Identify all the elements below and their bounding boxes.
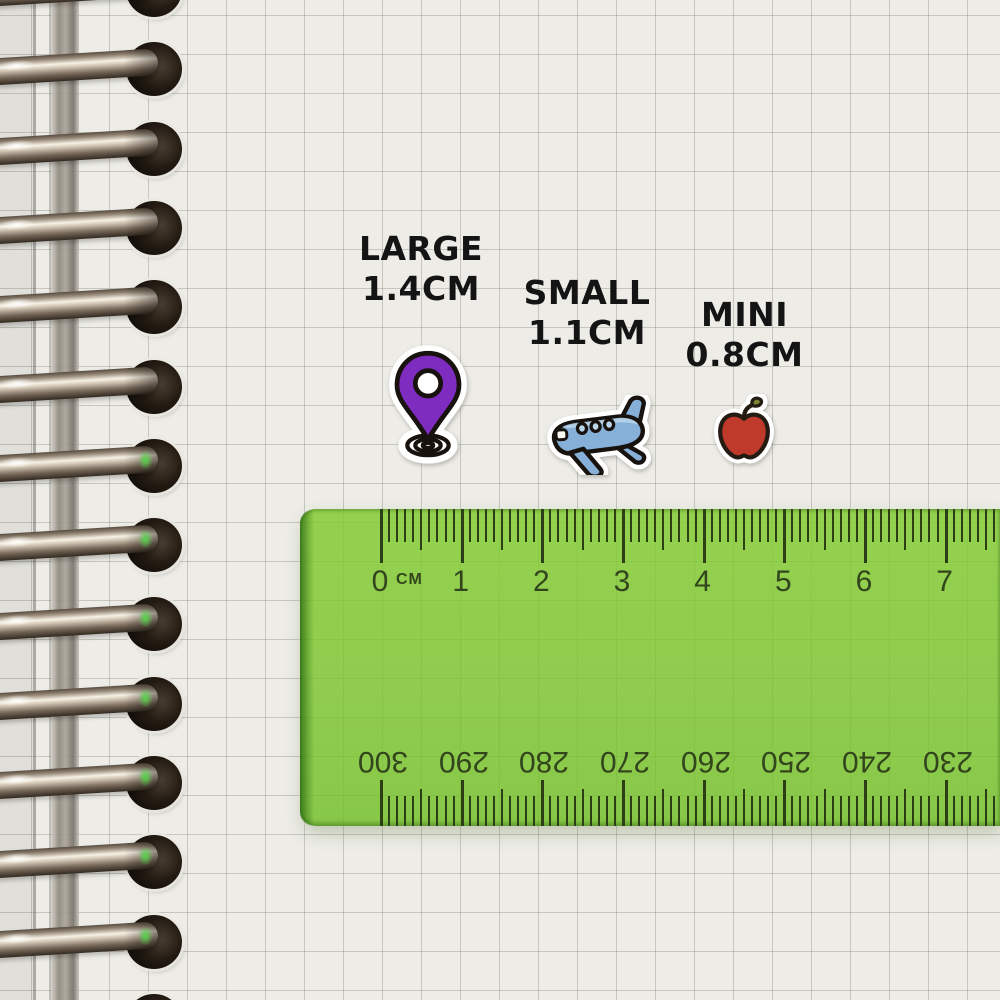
location-pin-icon (381, 342, 475, 466)
ruler-tick-top (799, 509, 801, 542)
ruler-number-top: 5 (775, 565, 792, 599)
ruler-tick-bottom (428, 796, 430, 826)
ruler-tick-top (920, 509, 922, 542)
ruler-tick-top (412, 509, 414, 542)
ruler-tick-top (485, 509, 487, 542)
ruler-tick-top (598, 509, 600, 542)
ruler: CM 01234567300290280270260250240230 (300, 509, 1000, 826)
apple-icon (711, 394, 777, 468)
ruler-tick-top (517, 509, 519, 542)
ruler-number-top: 7 (936, 565, 953, 599)
ruler-tick-bottom (493, 796, 495, 826)
ruler-tick-bottom (775, 796, 777, 826)
ruler-tick-top (832, 509, 834, 542)
ruler-tick-bottom (670, 796, 672, 826)
ruler-tick-top (557, 509, 559, 542)
ruler-tick-bottom (396, 796, 398, 826)
ruler-tick-top (453, 509, 455, 542)
ruler-tick-bottom (687, 796, 689, 826)
label-mini: MINI 0.8CM (652, 295, 837, 375)
ruler-tick-bottom (912, 796, 914, 826)
ruler-reflection-glint (138, 529, 153, 549)
ruler-tick-bottom (678, 796, 680, 826)
ruler-unit-label: CM (396, 571, 423, 589)
ruler-tick-top (928, 509, 930, 542)
ruler-tick-bottom (646, 796, 648, 826)
ruler-number-top: 2 (533, 565, 550, 599)
ruler-tick-bottom (614, 796, 616, 826)
ruler-tick-top (687, 509, 689, 542)
ruler-number-bottom: 270 (600, 744, 650, 778)
ruler-tick-bottom (622, 780, 625, 826)
ruler-tick-top (880, 509, 882, 542)
ruler-tick-bottom (832, 796, 834, 826)
ruler-tick-top (654, 509, 656, 542)
ruler-tick-bottom (993, 796, 995, 826)
ruler-tick-top (695, 509, 697, 542)
ruler-tick-bottom (695, 796, 697, 826)
ruler-tick-top (396, 509, 398, 542)
ruler-tick-bottom (888, 796, 890, 826)
ruler-tick-bottom (590, 796, 592, 826)
ruler-tick-top (380, 509, 383, 563)
ruler-tick-bottom (703, 780, 706, 826)
ruler-tick-top (896, 509, 898, 542)
ruler-tick-bottom (445, 796, 447, 826)
ruler-tick-top (743, 509, 745, 550)
ruler-tick-top (703, 509, 706, 563)
ruler-tick-bottom (533, 796, 535, 826)
ruler-tick-bottom (880, 796, 882, 826)
ruler-tick-bottom (856, 796, 858, 826)
ruler-number-bottom: 250 (761, 744, 811, 778)
ruler-tick-top (759, 509, 761, 542)
ruler-tick-top (977, 509, 979, 542)
ruler-reflection-glint (138, 688, 153, 708)
label-large-size: 1.4CM (328, 269, 514, 309)
ruler-tick-top (953, 509, 955, 542)
ruler-tick-bottom (864, 780, 867, 826)
ruler-reflection-glint (138, 926, 153, 946)
ruler-tick-top (735, 509, 737, 542)
ruler-number-top: 6 (856, 565, 873, 599)
ruler-tick-bottom (904, 789, 906, 826)
ruler-tick-top (727, 509, 729, 542)
ruler-tick-bottom (751, 796, 753, 826)
ruler-tick-bottom (566, 796, 568, 826)
ruler-tick-top (533, 509, 535, 542)
ruler-tick-bottom (509, 796, 511, 826)
ruler-tick-bottom (485, 796, 487, 826)
ruler-tick-bottom (711, 796, 713, 826)
ruler-tick-top (816, 509, 818, 542)
label-mini-name: MINI (652, 295, 837, 335)
ruler-tick-bottom (791, 796, 793, 826)
ruler-tick-bottom (977, 796, 979, 826)
ruler-tick-top (404, 509, 406, 542)
ruler-tick-bottom (638, 796, 640, 826)
ruler-tick-top (856, 509, 858, 542)
ruler-tick-top (711, 509, 713, 542)
ruler-tick-top (751, 509, 753, 542)
ruler-number-bottom: 300 (358, 744, 408, 778)
ruler-tick-top (969, 509, 971, 542)
ruler-tick-bottom (582, 789, 584, 826)
ruler-tick-top (985, 509, 987, 550)
ruler-number-bottom: 280 (519, 744, 569, 778)
ruler-tick-bottom (961, 796, 963, 826)
ruler-tick-top (606, 509, 608, 542)
ruler-tick-bottom (388, 796, 390, 826)
ruler-tick-bottom (824, 789, 826, 826)
ruler-tick-top (574, 509, 576, 542)
ruler-number-top: 3 (614, 565, 631, 599)
ruler-tick-top (469, 509, 471, 542)
ruler-tick-top (864, 509, 867, 563)
ruler-number-top: 4 (694, 565, 711, 599)
ruler-tick-bottom (985, 789, 987, 826)
ruler-tick-top (436, 509, 438, 542)
ruler-tick-bottom (783, 780, 786, 826)
ruler-tick-top (904, 509, 906, 550)
ruler-tick-bottom (436, 796, 438, 826)
ruler-tick-bottom (541, 780, 544, 826)
ruler-tick-bottom (549, 796, 551, 826)
ruler-tick-top (848, 509, 850, 542)
ruler-number-bottom: 230 (923, 744, 973, 778)
ruler-number-top: 1 (452, 565, 469, 599)
ruler-tick-bottom (799, 796, 801, 826)
ruler-tick-bottom (630, 796, 632, 826)
ruler-tick-top (945, 509, 948, 563)
ruler-tick-bottom (420, 789, 422, 826)
ruler-tick-top (662, 509, 664, 550)
ruler-tick-top (549, 509, 551, 542)
ruler-tick-bottom (662, 789, 664, 826)
ruler-number-bottom: 260 (681, 744, 731, 778)
ruler-tick-top (590, 509, 592, 542)
ruler-tick-top (630, 509, 632, 542)
ruler-tick-top (646, 509, 648, 542)
ruler-tick-bottom (380, 780, 383, 826)
ruler-tick-bottom (557, 796, 559, 826)
ruler-tick-top (477, 509, 479, 542)
ruler-tick-bottom (469, 796, 471, 826)
ruler-tick-top (767, 509, 769, 542)
ruler-tick-top (428, 509, 430, 542)
ruler-tick-top (670, 509, 672, 542)
ruler-tick-bottom (477, 796, 479, 826)
ruler-tick-top (993, 509, 995, 542)
ruler-tick-bottom (816, 796, 818, 826)
ruler-tick-bottom (937, 796, 939, 826)
ruler-tick-top (872, 509, 874, 542)
label-mini-size: 0.8CM (652, 335, 837, 375)
ruler-tick-bottom (945, 780, 948, 826)
ruler-tick-bottom (453, 796, 455, 826)
ruler-tick-bottom (872, 796, 874, 826)
label-large-name: LARGE (328, 229, 514, 269)
ruler-tick-top (509, 509, 511, 542)
airplane-icon (541, 395, 659, 475)
ruler-tick-top (614, 509, 616, 542)
ruler-tick-bottom (920, 796, 922, 826)
ruler-reflection-glint (138, 767, 153, 787)
ruler-tick-top (937, 509, 939, 542)
ruler-tick-top (638, 509, 640, 542)
ruler-tick-bottom (517, 796, 519, 826)
ruler-tick-bottom (606, 796, 608, 826)
ruler-tick-bottom (654, 796, 656, 826)
ruler-tick-top (775, 509, 777, 542)
ruler-tick-top (791, 509, 793, 542)
ruler-tick-top (445, 509, 447, 542)
ruler-tick-bottom (759, 796, 761, 826)
ruler-tick-bottom (969, 796, 971, 826)
ruler-tick-bottom (574, 796, 576, 826)
ruler-tick-bottom (525, 796, 527, 826)
ruler-number-bottom: 240 (842, 744, 892, 778)
ruler-tick-top (388, 509, 390, 542)
ruler-tick-top (719, 509, 721, 542)
ruler-tick-bottom (404, 796, 406, 826)
ruler-number-bottom: 290 (439, 744, 489, 778)
ruler-tick-top (912, 509, 914, 542)
label-large: LARGE 1.4CM (328, 229, 514, 309)
ruler-tick-bottom (727, 796, 729, 826)
ruler-tick-top (541, 509, 544, 563)
ruler-tick-bottom (896, 796, 898, 826)
ruler-tick-bottom (767, 796, 769, 826)
ruler-tick-bottom (840, 796, 842, 826)
ruler-tick-top (525, 509, 527, 542)
ruler-tick-top (582, 509, 584, 550)
ruler-tick-bottom (743, 789, 745, 826)
ruler-tick-top (807, 509, 809, 542)
ruler-tick-top (461, 509, 464, 563)
ruler-reflection-glint (138, 450, 153, 470)
ruler-tick-top (501, 509, 503, 550)
ruler-tick-bottom (848, 796, 850, 826)
ruler-number-top: 0 (372, 565, 389, 599)
ruler-tick-bottom (598, 796, 600, 826)
ruler-tick-bottom (412, 796, 414, 826)
ruler-tick-top (622, 509, 625, 563)
ruler-tick-bottom (719, 796, 721, 826)
ruler-tick-bottom (501, 789, 503, 826)
ruler-tick-top (678, 509, 680, 542)
ruler-tick-top (888, 509, 890, 542)
ruler-tick-bottom (735, 796, 737, 826)
ruler-tick-top (420, 509, 422, 550)
ruler-tick-top (783, 509, 786, 563)
ruler-tick-bottom (928, 796, 930, 826)
ruler-tick-top (566, 509, 568, 542)
ruler-tick-bottom (953, 796, 955, 826)
ruler-tick-bottom (461, 780, 464, 826)
notebook-photo-scene: LARGE 1.4CM SMALL 1.1CM MINI 0.8CM (0, 0, 1000, 1000)
ruler-tick-top (493, 509, 495, 542)
ruler-tick-top (840, 509, 842, 542)
ruler-tick-top (824, 509, 826, 550)
ruler-tick-bottom (807, 796, 809, 826)
ruler-tick-top (961, 509, 963, 542)
